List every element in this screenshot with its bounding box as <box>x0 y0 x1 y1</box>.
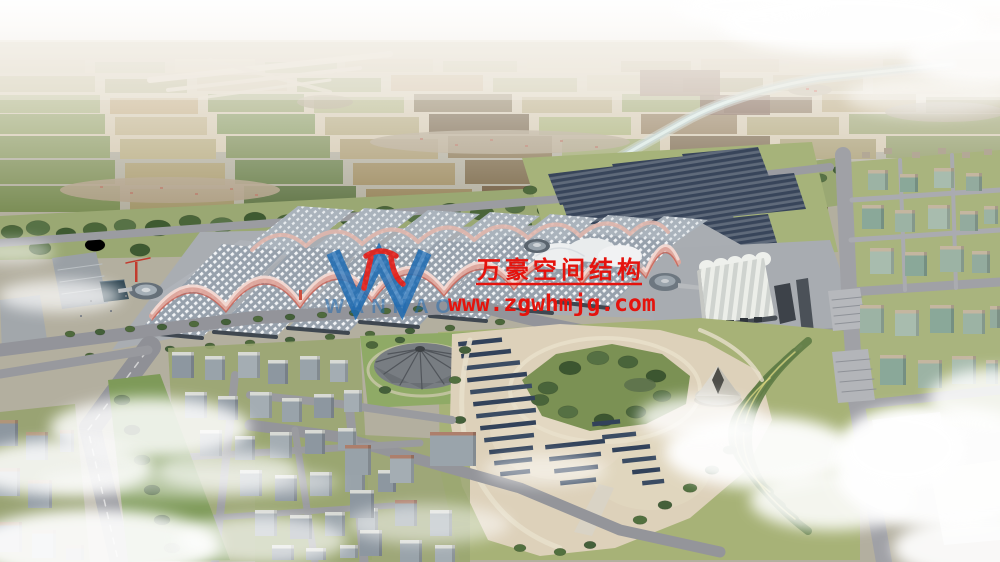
building-shade <box>912 210 915 232</box>
tree <box>587 351 609 365</box>
cloud <box>0 280 122 312</box>
tree <box>538 382 558 394</box>
crowd-dot <box>125 295 127 297</box>
render-canvas: WANHAO 万豪空间结构 www.zgwhmjg.com <box>0 0 1000 562</box>
building-roof <box>870 248 894 252</box>
stadium-disc <box>142 288 151 292</box>
building-shade <box>982 310 985 334</box>
building-shade <box>222 356 225 380</box>
building <box>928 205 950 229</box>
building-shade <box>885 170 888 190</box>
building-shade <box>987 251 990 273</box>
building-roof <box>255 510 277 514</box>
building-shade <box>285 360 288 384</box>
town-roof <box>984 149 992 155</box>
building-roof <box>918 360 942 364</box>
building-shade <box>331 394 334 418</box>
building-shade <box>289 432 292 458</box>
pylon <box>299 290 302 300</box>
building-shade <box>368 445 371 475</box>
cloud <box>346 504 510 544</box>
building-roof <box>26 432 48 436</box>
building <box>345 445 371 475</box>
tree <box>514 544 526 551</box>
building <box>860 305 884 333</box>
tree <box>554 548 566 555</box>
building-roof <box>250 392 272 396</box>
watermark-url: www.zgwhmjg.com <box>448 291 656 317</box>
tree <box>253 316 263 322</box>
tree <box>189 321 199 327</box>
building-roof <box>270 432 292 436</box>
building <box>172 352 194 378</box>
vaulted-hall <box>700 258 775 327</box>
town-roof <box>912 152 920 158</box>
tree <box>445 325 455 331</box>
building-shade <box>951 168 954 188</box>
town-roof <box>962 152 970 158</box>
tree <box>558 406 578 418</box>
cloud <box>177 516 347 562</box>
building <box>940 246 964 272</box>
tree <box>85 239 105 251</box>
building-shade <box>257 352 260 378</box>
building-roof <box>928 205 950 209</box>
building-roof <box>345 445 371 449</box>
building-roof <box>430 432 476 436</box>
building-shade <box>924 252 927 276</box>
fog-streak <box>40 466 340 498</box>
cloud <box>840 408 964 488</box>
building-shade <box>345 360 348 382</box>
building-roof <box>940 246 964 250</box>
tree <box>449 376 461 383</box>
tree <box>379 386 391 393</box>
building-shade <box>951 305 954 333</box>
crowd-dot <box>80 315 82 317</box>
tree <box>130 244 150 256</box>
aerial-render: WANHAO 万豪空间结构 www.zgwhmjg.com <box>0 0 1000 562</box>
building-roof <box>952 356 976 360</box>
tree <box>325 334 335 340</box>
tree <box>366 341 378 348</box>
oval-pavilion <box>661 279 669 283</box>
building-shade <box>903 355 906 385</box>
cloud <box>483 454 607 486</box>
building <box>895 310 919 336</box>
tree <box>285 314 295 320</box>
building-roof <box>963 310 985 314</box>
tree <box>65 331 75 337</box>
building-shade <box>881 305 884 333</box>
parking-east <box>832 349 875 403</box>
building-shade <box>452 545 455 562</box>
tree <box>618 356 638 368</box>
tree <box>584 541 596 548</box>
building-roof <box>905 252 927 256</box>
tree <box>633 516 647 525</box>
building <box>930 305 954 333</box>
building <box>870 248 894 274</box>
building <box>238 352 260 378</box>
hall-door <box>754 317 762 322</box>
tree <box>683 484 697 493</box>
building-roof <box>238 352 260 356</box>
building-roof <box>350 490 374 494</box>
tree <box>459 346 471 353</box>
watermark-company-name: 万豪空间结构 <box>477 256 645 284</box>
building-shade <box>411 455 414 483</box>
building-shade <box>915 174 918 192</box>
building-roof <box>395 500 417 504</box>
town-roof <box>884 148 892 154</box>
tree <box>405 328 415 334</box>
building <box>430 432 476 466</box>
building <box>963 310 985 334</box>
tree <box>495 319 505 325</box>
building-shade <box>975 211 978 231</box>
building <box>880 355 906 385</box>
building-roof <box>862 205 884 209</box>
building-shade <box>995 206 998 224</box>
building-roof <box>390 455 414 459</box>
building-roof <box>880 355 906 359</box>
town-roof <box>862 152 870 158</box>
building-roof <box>185 392 207 396</box>
building-shade <box>961 246 964 272</box>
town-roof <box>938 148 946 154</box>
building-shade <box>473 432 476 466</box>
building-shade <box>881 205 884 229</box>
building-shade <box>355 545 358 558</box>
building-roof <box>860 305 884 309</box>
tree <box>658 501 672 510</box>
building-roof <box>895 310 919 314</box>
building-roof <box>930 305 954 309</box>
building-shade <box>891 248 894 274</box>
tree <box>221 319 231 325</box>
round-pavilion <box>533 243 541 247</box>
building-shade <box>299 398 302 422</box>
building-shade <box>317 356 320 380</box>
crowd-dot <box>110 310 112 312</box>
tree <box>395 337 405 343</box>
building-shade <box>15 420 18 446</box>
tree <box>157 324 167 330</box>
building <box>270 432 292 458</box>
logo-wordmark: WANHAO <box>325 296 458 318</box>
cloud <box>638 396 762 440</box>
building <box>905 252 927 276</box>
building-shade <box>322 430 325 454</box>
tree <box>26 221 50 236</box>
building-shade <box>269 392 272 418</box>
tree <box>559 361 581 375</box>
building-shade <box>359 390 362 412</box>
tree <box>523 186 537 195</box>
tree <box>125 326 135 332</box>
building-shade <box>979 173 982 191</box>
building-shade <box>191 352 194 378</box>
island-pond <box>624 378 656 392</box>
building <box>390 455 414 483</box>
building-shade <box>916 310 919 336</box>
tree <box>1 225 23 239</box>
tent-apex <box>415 346 425 352</box>
crane-mast <box>135 262 138 282</box>
tree <box>95 329 105 335</box>
building <box>250 392 272 418</box>
building-shade <box>947 205 950 229</box>
building-roof <box>172 352 194 356</box>
building <box>862 205 884 229</box>
